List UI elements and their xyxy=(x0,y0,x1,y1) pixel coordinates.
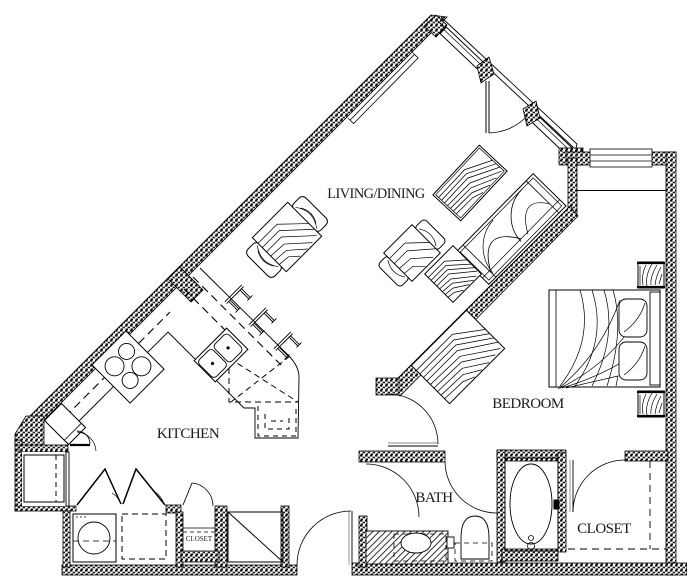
svg-text:LIVING/DINING: LIVING/DINING xyxy=(327,186,425,202)
svg-text:BEDROOM: BEDROOM xyxy=(492,396,564,412)
svg-text:KITCHEN: KITCHEN xyxy=(157,426,220,442)
svg-text:CLOSET: CLOSET xyxy=(186,535,213,543)
svg-text:BATH: BATH xyxy=(415,490,453,506)
svg-text:CLOSET: CLOSET xyxy=(577,521,631,537)
